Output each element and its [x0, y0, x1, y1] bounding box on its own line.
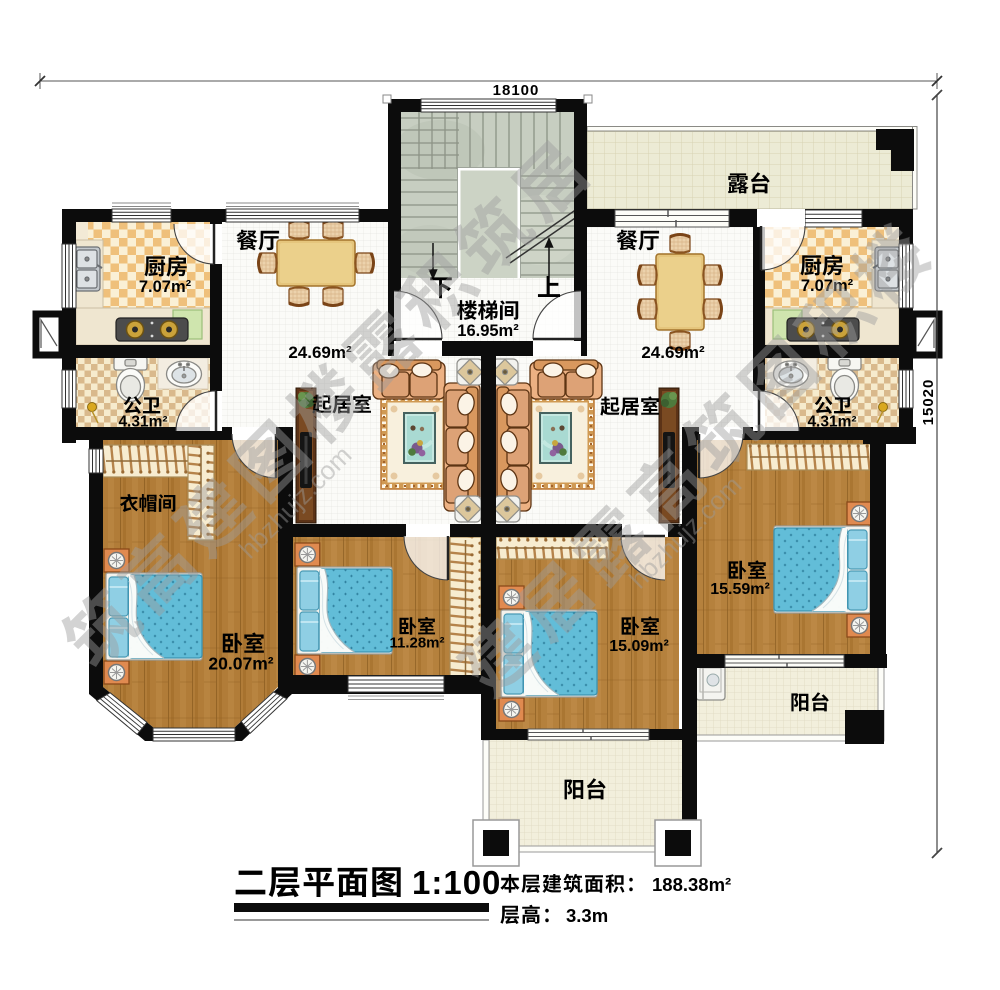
svg-text:24.69m²: 24.69m²	[641, 343, 705, 362]
svg-text:3.3m: 3.3m	[566, 905, 608, 926]
svg-text:16.95m²: 16.95m²	[457, 322, 519, 340]
svg-text:1:100: 1:100	[412, 864, 501, 901]
svg-text:18100: 18100	[493, 82, 540, 99]
svg-text:4.31m²: 4.31m²	[807, 414, 856, 431]
svg-text:7.07m²: 7.07m²	[139, 278, 192, 296]
svg-text:15.09m²: 15.09m²	[609, 638, 669, 655]
svg-text:20.07m²: 20.07m²	[208, 653, 273, 673]
svg-text:15020: 15020	[920, 379, 937, 426]
svg-text:4.31m²: 4.31m²	[118, 414, 167, 431]
svg-text:11.28m²: 11.28m²	[389, 634, 444, 651]
svg-text:188.38m²: 188.38m²	[652, 874, 731, 895]
svg-text:15.59m²: 15.59m²	[710, 581, 770, 598]
